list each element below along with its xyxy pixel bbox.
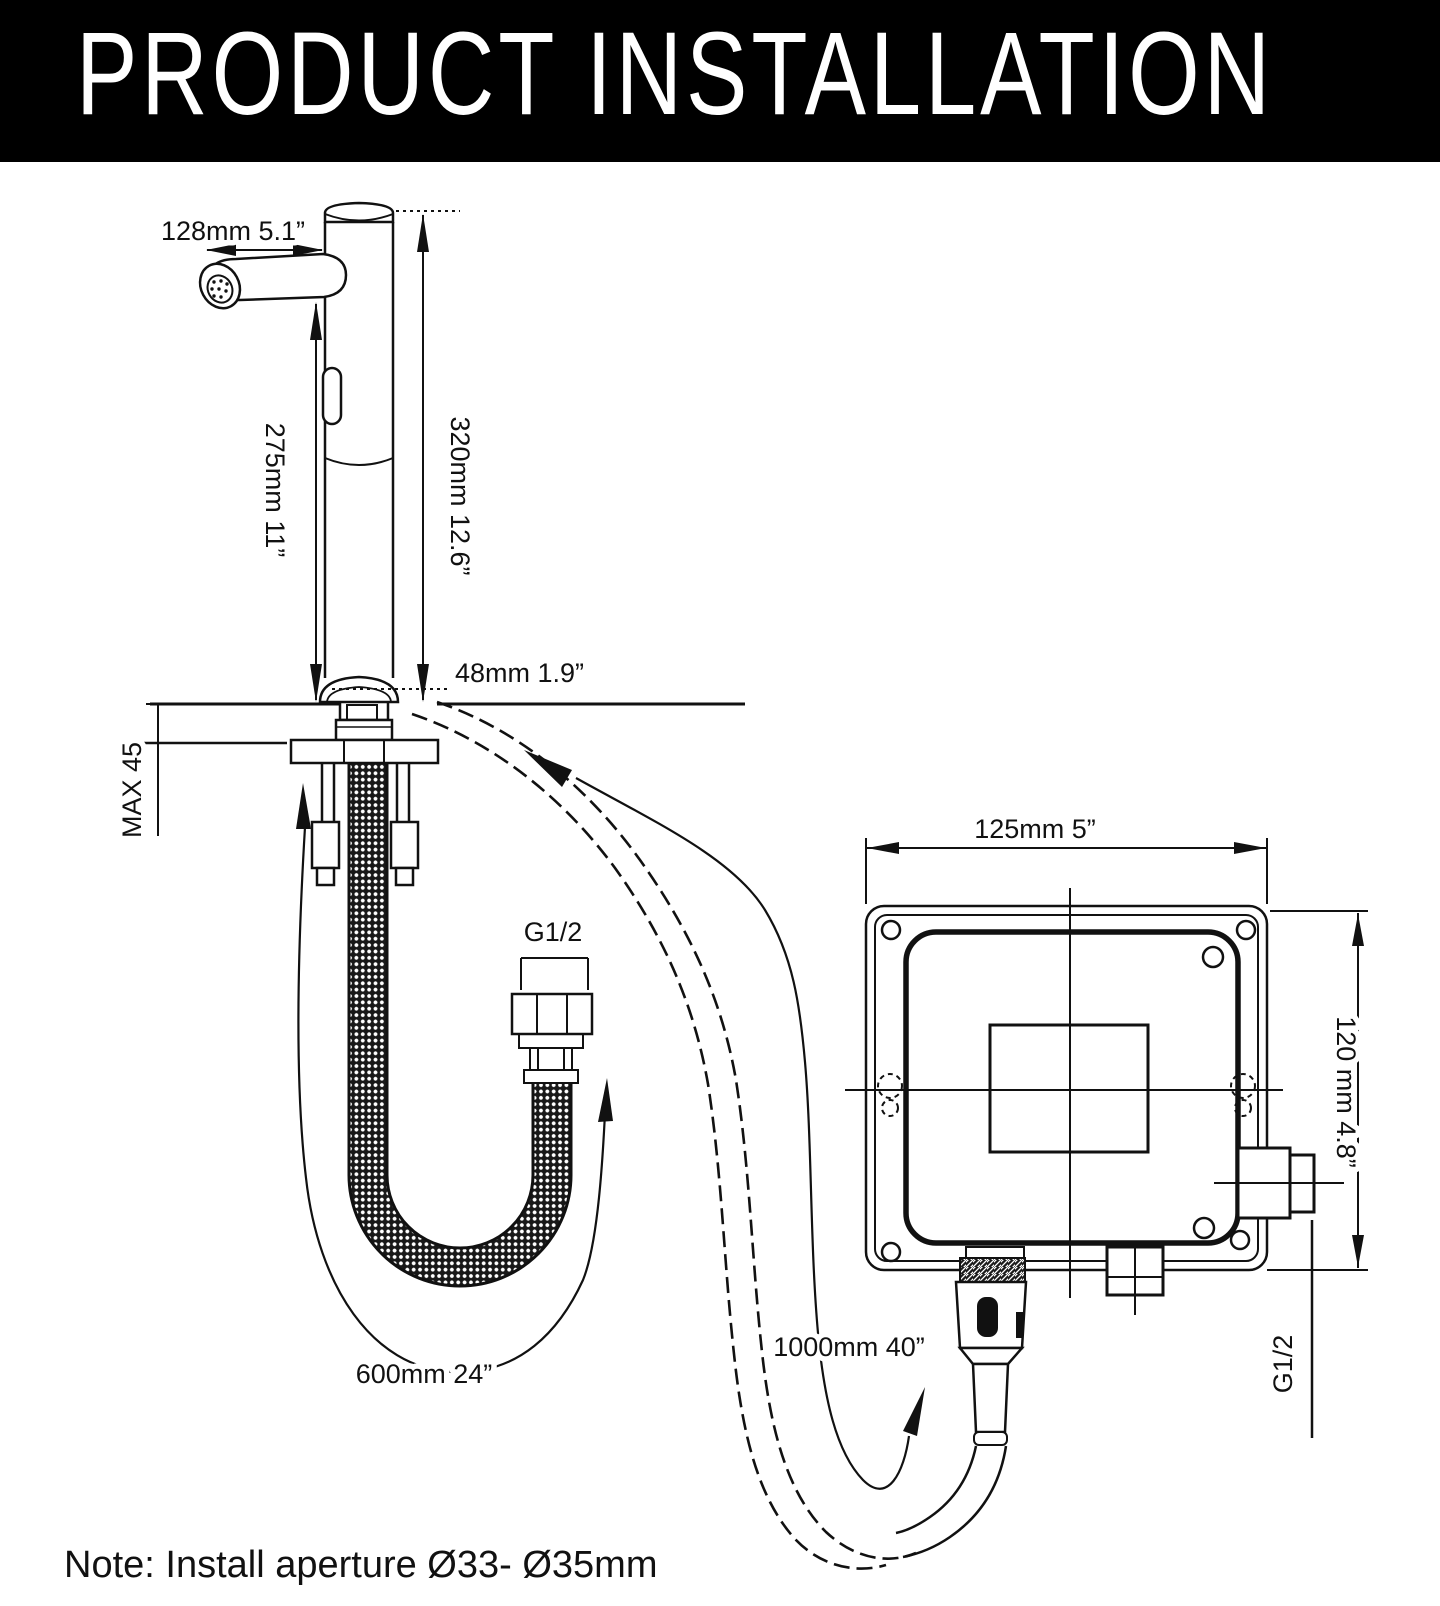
label-box-height: 120 mm 4.8”	[1331, 1016, 1361, 1168]
label-total-height: 320mm 12.6”	[445, 416, 475, 575]
dimension-labels: 128mm 5.1” 275mm 11” 320mm 12.6” 48mm 1.…	[64, 216, 1361, 1586]
installation-diagram: 128mm 5.1” 275mm 11” 320mm 12.6” 48mm 1.…	[0, 0, 1440, 1606]
label-box-width: 125mm 5”	[974, 814, 1096, 844]
install-note: Note: Install aperture Ø33- Ø35mm	[64, 1544, 657, 1586]
sensor-window	[323, 368, 341, 424]
label-spout-reach: 128mm 5.1”	[161, 216, 305, 246]
label-supply-hose-length: 600mm 24”	[356, 1359, 493, 1389]
box-screw	[882, 921, 900, 939]
page: PRODUCT INSTALLATION	[0, 0, 1440, 1606]
label-max-deck-thickness: MAX 45	[117, 742, 147, 838]
lid-screw-hole	[1203, 947, 1223, 967]
countertop	[138, 704, 745, 836]
supply-hose-connector	[512, 958, 592, 1083]
lid-screw-hole	[1194, 1218, 1214, 1238]
box-screw	[1231, 1231, 1249, 1249]
label-supply-hose-thread: G1/2	[524, 917, 583, 947]
label-box-outlet-thread: G1/2	[1268, 1335, 1298, 1394]
box-inlet-connector	[896, 1247, 1026, 1557]
box-screw	[882, 1243, 900, 1261]
label-sensor-hose-length: 1000mm 40”	[773, 1332, 925, 1362]
faucet-drawing	[192, 203, 398, 702]
box-screw	[1237, 921, 1255, 939]
sensor-hose-dashed	[412, 702, 916, 1569]
label-spout-height: 275mm 11”	[260, 423, 290, 558]
label-base-diameter: 48mm 1.9”	[455, 658, 584, 688]
control-box-drawing	[845, 888, 1344, 1315]
